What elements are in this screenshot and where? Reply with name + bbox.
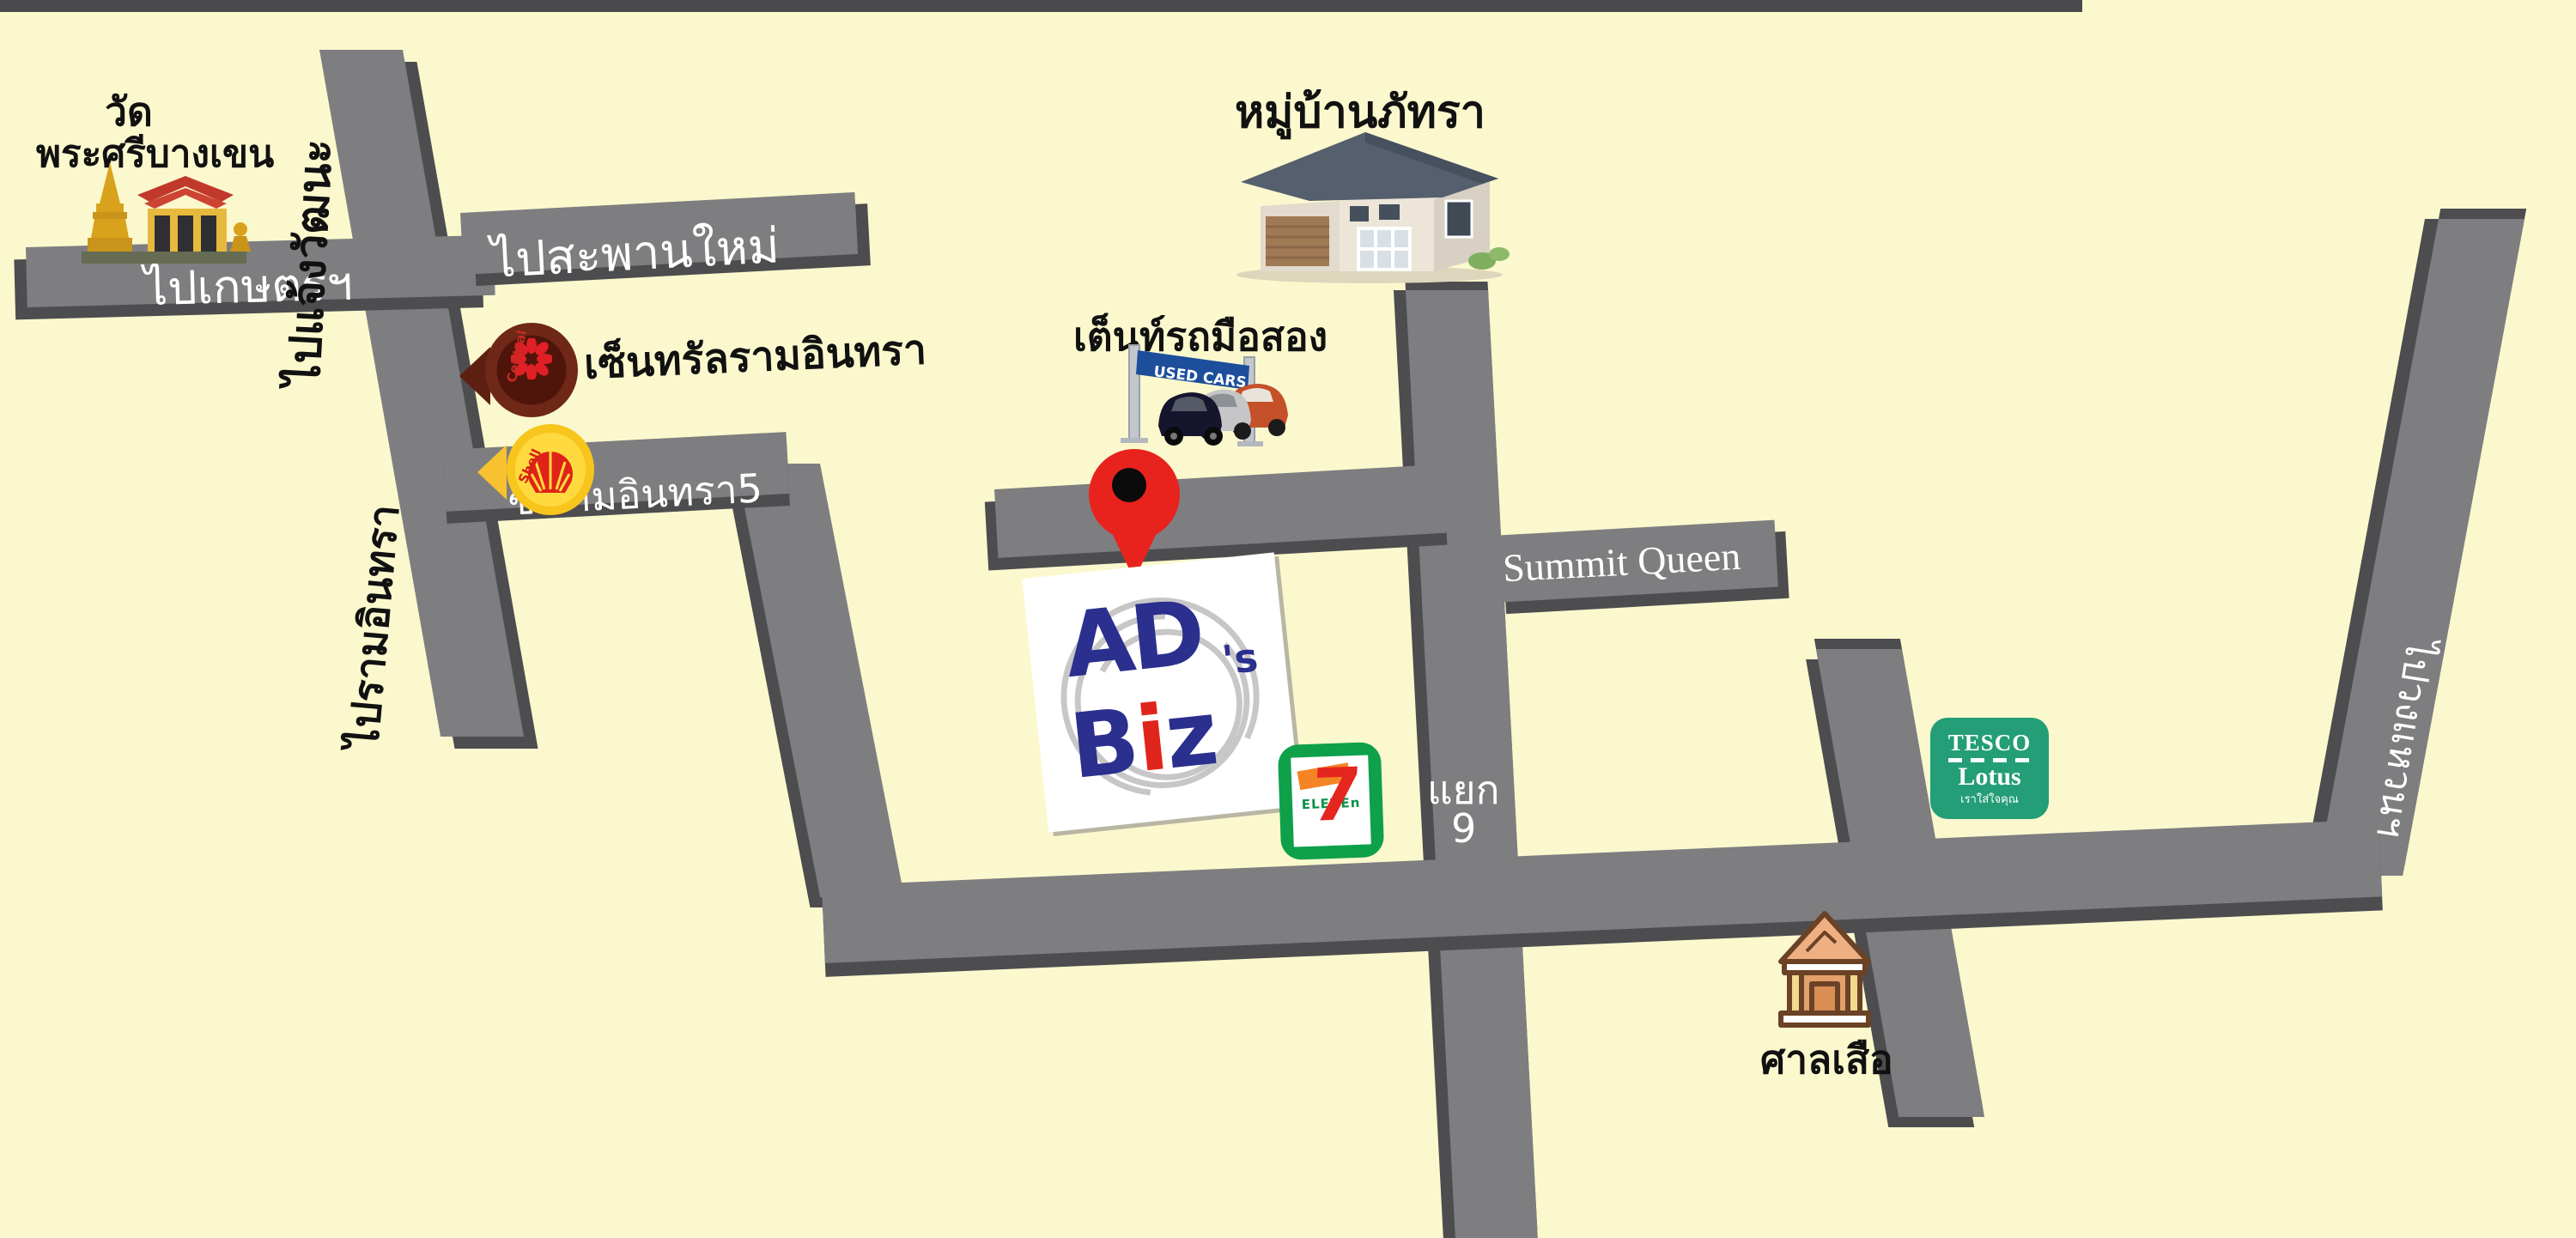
road-main-bottom <box>822 819 2382 963</box>
central-ramindra-label: เซ็นทรัลรามอินทรา <box>583 317 928 397</box>
road-label-to-chaengwattana: ไปแจ้งวัฒนะ <box>267 17 355 509</box>
lotus-text: Lotus <box>1930 762 2049 792</box>
map-pin-icon <box>1084 449 1185 580</box>
adsbiz-text-ad: AD <box>1060 580 1206 698</box>
used-cars-icon: USED CARS <box>1112 333 1301 453</box>
shell-pointer-icon <box>477 445 507 500</box>
shell-logo: Shell <box>477 424 594 519</box>
road-label-junction-number: 9 <box>1451 805 1476 852</box>
road-pin-segment <box>994 464 1457 558</box>
tesco-lotus-logo: TESCO Lotus เราใส่ใจคุณ <box>1930 718 2049 819</box>
seven-eleven-seven: 7 <box>1308 752 1364 838</box>
map-canvas: ไปเกษตรฯ ไปสะพานใหม่ ซ.รามอินทรา5 Summit… <box>0 0 2576 1238</box>
road-soi5-descender <box>736 464 904 897</box>
adsbiz-text-s: 's <box>1220 634 1261 683</box>
car-navy <box>1158 392 1223 446</box>
adsbiz-logo-card: AD 's Biz <box>1022 552 1300 832</box>
seven-eleven-logo: ELEVEn 7 <box>1278 742 1385 860</box>
tesco-text: TESCO <box>1930 730 2049 756</box>
road-label-to-saphanmai: ไปสะพานใหม่ <box>489 207 781 298</box>
tiger-shrine-icon <box>1772 908 1877 1033</box>
road-label-to-ramindra: ไปรามอินทรา <box>329 453 421 801</box>
tiger-shrine-label: ศาลเสือ <box>1760 1029 1893 1091</box>
village-house-icon <box>1228 127 1511 286</box>
temple-icon <box>77 159 253 266</box>
adsbiz-text-biz: Biz <box>1066 680 1221 799</box>
central-circle-icon: Central <box>485 323 578 417</box>
tesco-tagline: เราใส่ใจคุณ <box>1930 790 2049 808</box>
road-top-edge <box>0 0 2082 12</box>
central-ramindra-logo: Central <box>459 323 588 422</box>
